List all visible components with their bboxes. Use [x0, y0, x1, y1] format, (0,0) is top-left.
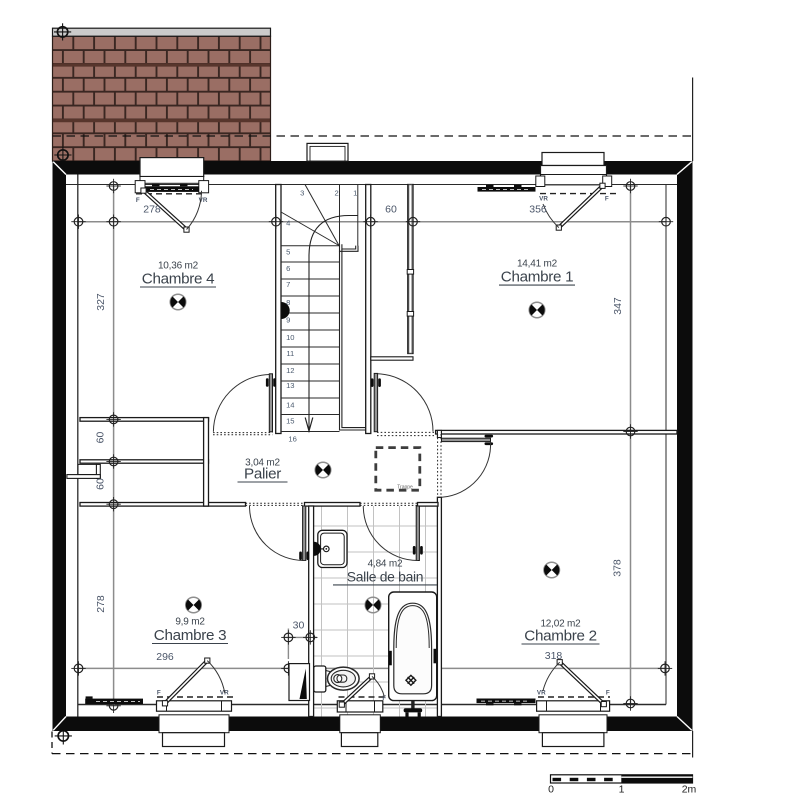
svg-text:13: 13: [286, 381, 294, 390]
svg-text:1: 1: [619, 784, 625, 796]
svg-text:60: 60: [95, 432, 107, 444]
svg-text:Chambre 3: Chambre 3: [154, 627, 226, 644]
svg-text:F: F: [605, 195, 609, 202]
svg-text:3: 3: [300, 189, 304, 198]
svg-text:Chambre 2: Chambre 2: [524, 628, 596, 645]
svg-text:7: 7: [286, 280, 290, 289]
svg-text:F: F: [136, 197, 140, 204]
svg-text:327: 327: [95, 293, 107, 311]
svg-text:VR: VR: [537, 690, 546, 697]
svg-text:16: 16: [288, 434, 296, 443]
svg-text:VR: VR: [539, 195, 548, 202]
svg-text:8: 8: [286, 298, 290, 307]
svg-text:10: 10: [286, 333, 294, 342]
svg-text:296: 296: [156, 651, 174, 663]
svg-text:4: 4: [286, 218, 290, 227]
svg-text:356: 356: [529, 204, 547, 216]
svg-text:30: 30: [293, 620, 305, 632]
svg-text:11: 11: [286, 349, 294, 358]
svg-text:278: 278: [143, 204, 161, 216]
svg-text:9,9 m2: 9,9 m2: [175, 617, 205, 628]
svg-text:Chambre 4: Chambre 4: [142, 271, 214, 288]
svg-text:6: 6: [286, 264, 290, 273]
svg-text:0: 0: [548, 784, 554, 796]
svg-text:5: 5: [286, 247, 290, 256]
svg-text:Salle de bain: Salle de bain: [347, 568, 423, 584]
svg-text:2m: 2m: [682, 784, 697, 796]
svg-text:Chambre 1: Chambre 1: [501, 269, 573, 286]
svg-text:Trappe: Trappe: [397, 485, 413, 491]
svg-text:9: 9: [286, 315, 290, 324]
svg-text:F: F: [157, 690, 161, 697]
svg-text:1: 1: [353, 189, 357, 198]
svg-text:15: 15: [286, 417, 294, 426]
svg-text:347: 347: [612, 297, 624, 315]
svg-text:12: 12: [286, 366, 294, 375]
svg-text:60: 60: [95, 478, 107, 490]
svg-text:F: F: [606, 690, 610, 697]
svg-text:2: 2: [334, 189, 338, 198]
svg-text:378: 378: [612, 559, 624, 577]
svg-text:Palier: Palier: [244, 466, 281, 483]
svg-text:318: 318: [545, 650, 563, 662]
svg-text:278: 278: [95, 595, 107, 613]
svg-text:14: 14: [286, 400, 294, 409]
svg-text:60: 60: [385, 204, 397, 216]
